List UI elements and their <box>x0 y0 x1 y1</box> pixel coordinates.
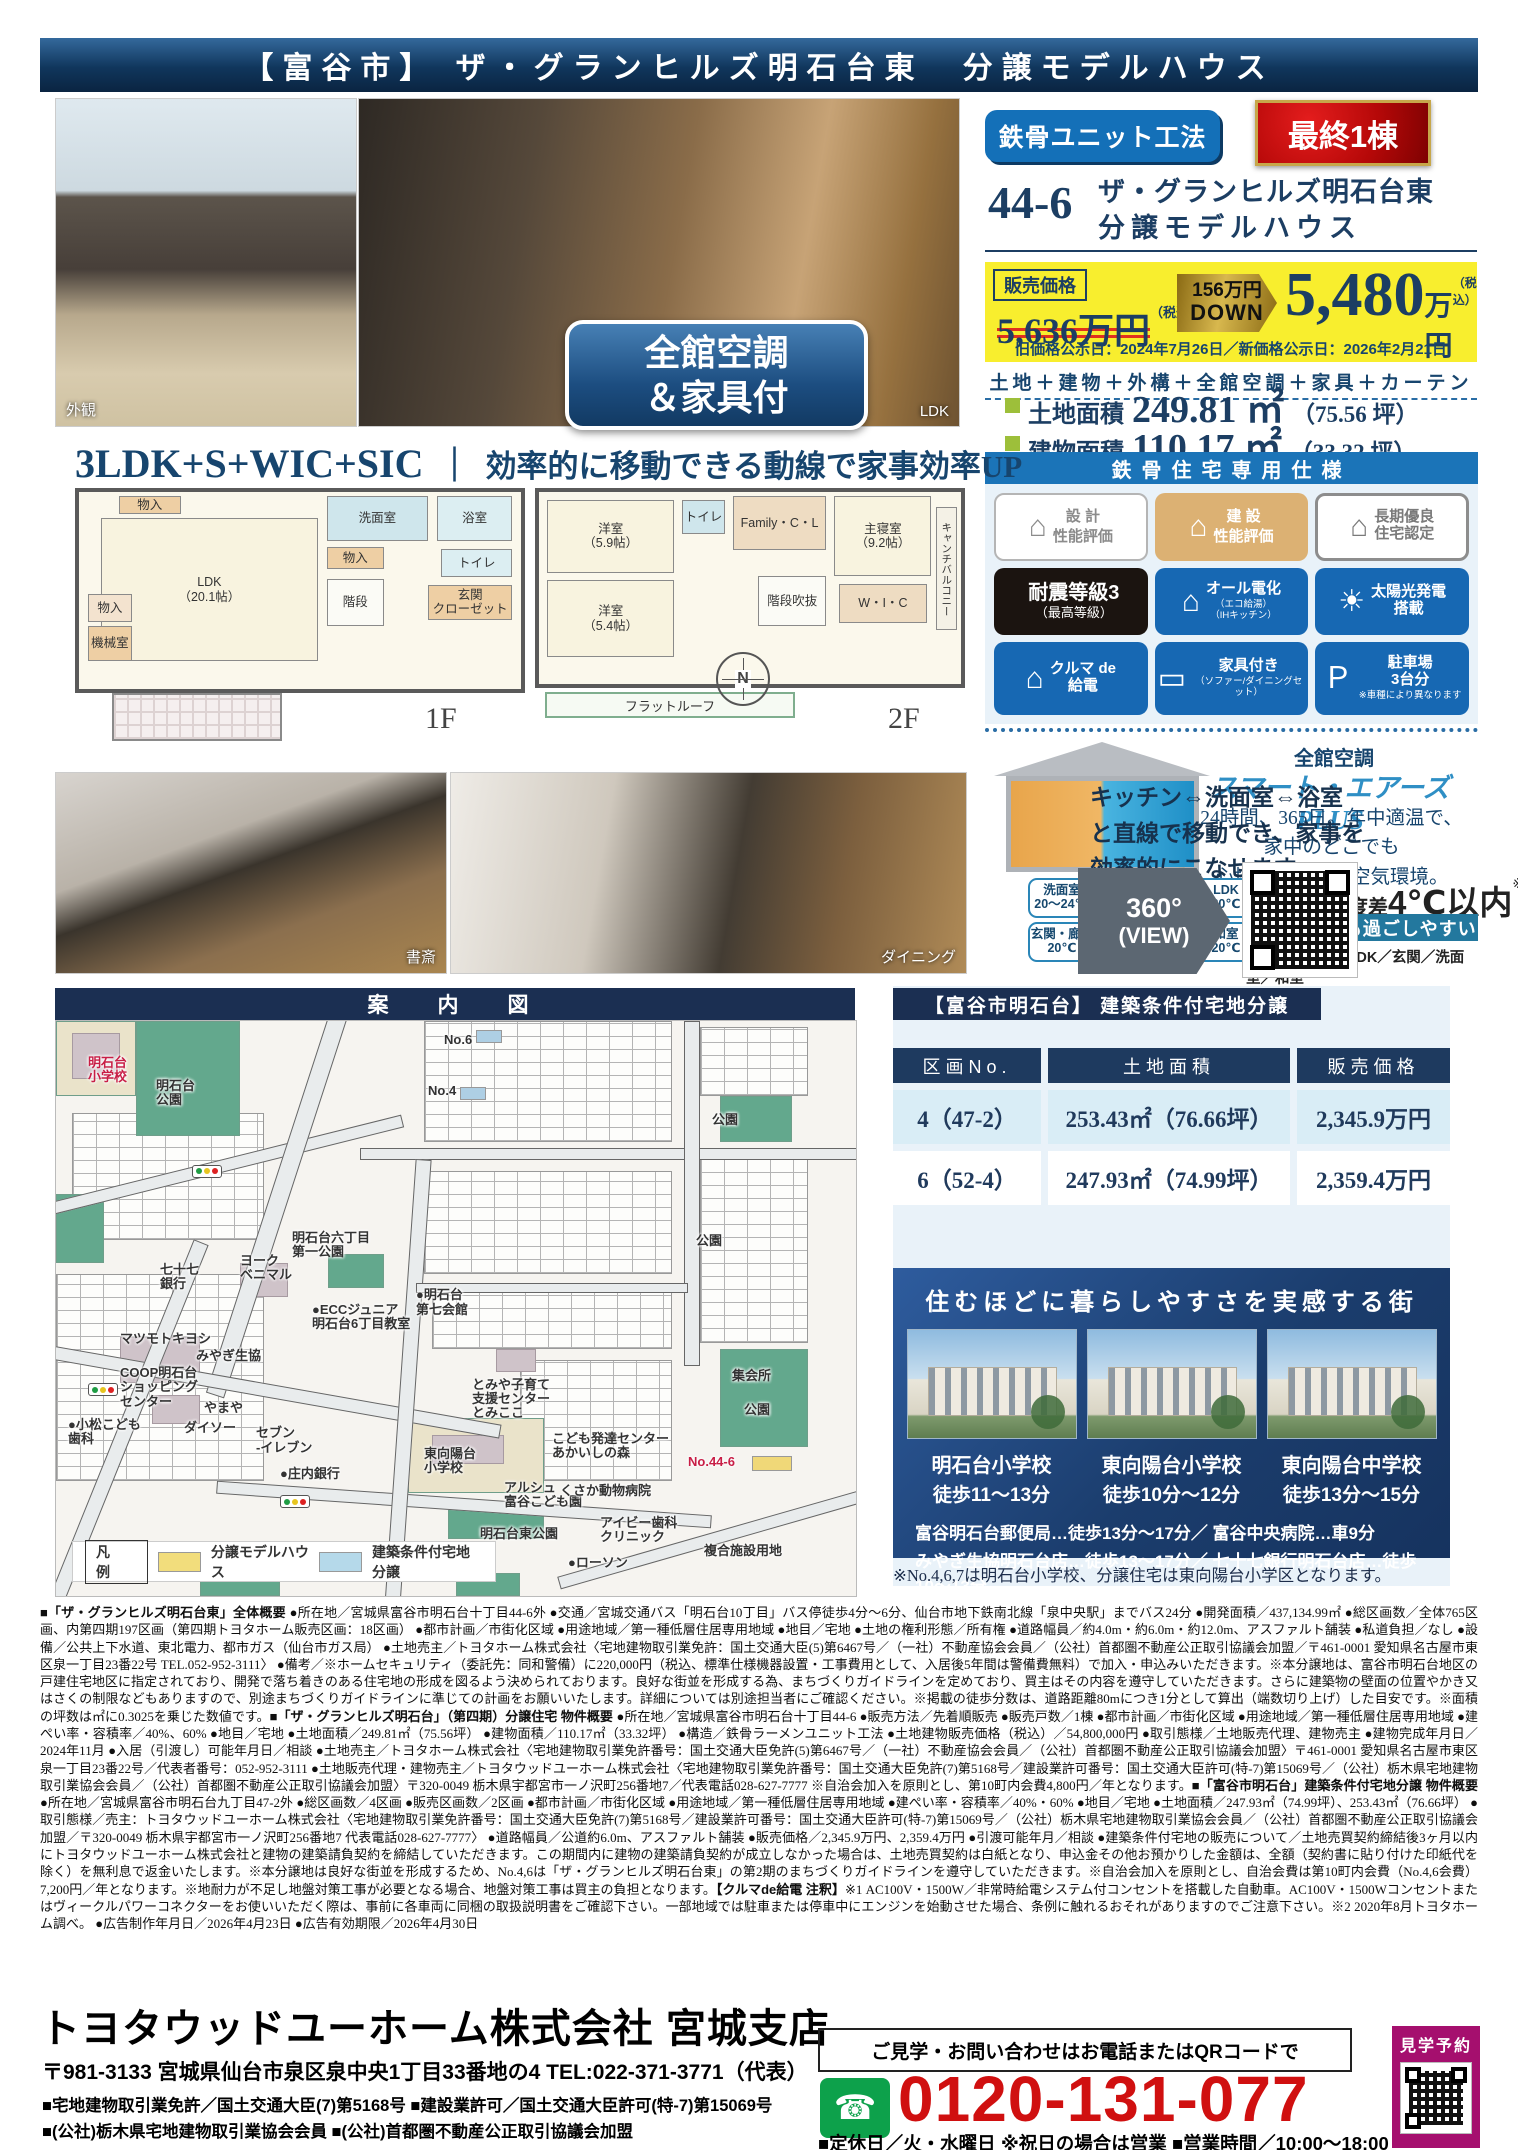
map-label: 公園 <box>696 1234 722 1248</box>
license-line1: ■宅地建物取引業免許／国土交通大臣(7)第5168号 ■建設業許可／国土交通大臣… <box>42 2092 772 2116</box>
house-roof-shape <box>994 742 1210 776</box>
lot-number: 44-6 <box>988 176 1072 229</box>
new-price-value: 5,480 <box>1285 260 1425 331</box>
map-label: やまや <box>204 1401 243 1415</box>
map-label: 集会所 <box>732 1369 771 1383</box>
map-legend: 凡 例 分譲モデルハウス 建築条件付宅地分譲 <box>72 1541 496 1581</box>
spec-badge: Ｐ 駐車場 3台分 ※車種により異なります <box>1315 642 1469 715</box>
school-item: 明石台小学校 徒歩11〜13分 <box>907 1329 1077 1507</box>
map-shape <box>496 1349 536 1372</box>
floorplan-1f: 物入LDK （20.1帖）洗面室浴室物入トイレ玄関 クローゼット物入機械室階段 <box>75 488 525 693</box>
map-label: セブン -イレブン <box>256 1426 312 1455</box>
legend-label-lots: 建築条件付宅地分譲 <box>372 1542 483 1582</box>
spec-badge-icon: ▭ <box>1158 664 1186 694</box>
ldk-photo-label: LDK <box>920 403 949 420</box>
spec-badge-icon: ⌂ <box>1029 512 1047 542</box>
traffic-light-icon <box>88 1383 118 1396</box>
spec-badge-text: 長期優良 住宅認定 <box>1374 509 1434 545</box>
reservation-label: 見学予約 <box>1400 2032 1472 2056</box>
map-shape <box>424 1171 672 1275</box>
phone-number: 0120-131-077 <box>898 2062 1309 2136</box>
spec-badge: 耐震等級3 （最高等級） <box>994 568 1148 635</box>
map-label: ●明石台 第七会館 <box>416 1288 468 1317</box>
map-label: 七十七 銀行 <box>160 1263 199 1292</box>
floorplan-room: 機械室 <box>88 626 132 661</box>
reservation-qr-code <box>1400 2062 1472 2134</box>
map-label: ダイソー <box>184 1421 236 1435</box>
new-price-tax: （税込） <box>1453 274 1477 308</box>
plan-type: 3LDK+S+WIC+SIC <box>75 440 423 487</box>
last-unit-badge: 最終1棟 <box>1255 100 1431 166</box>
floorplan-room: 浴室 <box>437 496 512 541</box>
map-label: 明石台東公園 <box>480 1527 558 1541</box>
floorplan-room: 洋室 （5.4帖） <box>547 580 674 657</box>
exterior-photo: 外観 <box>55 98 357 427</box>
school-name: 東向陽台小学校 <box>1087 1449 1257 1478</box>
aircon-badge-line2: ＆家具付 <box>644 375 788 420</box>
floorplan-room: LDK （20.1帖） <box>101 518 318 662</box>
map-shape <box>476 1030 502 1043</box>
plan-catchcopy: 効率的に移動できる動線で家事効率UP <box>485 441 1022 486</box>
header-bar: 【富谷市】 ザ・グランヒルズ明石台東 分譲モデルハウス <box>40 38 1478 92</box>
spec-badge-icon: ⌂ <box>1026 664 1044 694</box>
map-label: No.44-6 <box>688 1455 735 1469</box>
down-amount: 156万円 <box>1192 281 1262 301</box>
spec-badge-text: 建 設 性能評価 <box>1214 509 1274 545</box>
spec-badge-text: 太陽光発電 搭載 <box>1371 584 1446 620</box>
price-down-badge: 156万円 DOWN <box>1177 274 1277 332</box>
aircon-furniture-badge: 全館空調 ＆家具付 <box>565 320 868 430</box>
floor1-label: 1F <box>425 702 457 736</box>
spec-badge-text: クルマ de 給電 <box>1050 661 1116 697</box>
spec-badge: ⌂ 建 設 性能評価 <box>1155 493 1309 561</box>
map-label: No.6 <box>444 1033 472 1047</box>
map-shape <box>720 1349 808 1447</box>
school-item: 東向陽台中学校 徒歩13分〜15分 <box>1267 1329 1437 1507</box>
map-label: アイビー歯科 クリニック <box>600 1516 677 1545</box>
floorplan-room: 主寝室 （9.2帖） <box>834 496 931 577</box>
floorplan-room: キャンチバルコニー <box>936 507 957 630</box>
map-label: COOP明石台 ショッピング センター <box>120 1366 198 1409</box>
fine-print: ■「ザ・グランヒルズ明石台東」全体概要 ●所在地／宮城県富谷市明石台十丁目44-… <box>40 1604 1478 1986</box>
down-word: DOWN <box>1190 301 1264 324</box>
town-panel: 住むほどに暮らしやすさを実感する街 明石台小学校 徒歩11〜13分 東向陽台小学… <box>893 1268 1450 1558</box>
lots-table-body: 4（47-2） 253.43㎡（76.66坪） 2,345.9万円 6（52-4… <box>893 1090 1450 1205</box>
price-date-note: 旧価格公示日：2024年7月26日／新価格公示日：2026年2月21日 <box>985 338 1477 359</box>
flyer-page: 【富谷市】 ザ・グランヒルズ明石台東 分譲モデルハウス 外観 LDK 全館空調 … <box>0 0 1518 2150</box>
spec-badge-icon: ☀ <box>1338 587 1365 617</box>
spec-badge-text: 耐震等級3 （最高等級） <box>1028 582 1119 621</box>
school-walk-time: 徒歩13分〜15分 <box>1267 1480 1437 1507</box>
table-row: 4（47-2） 253.43㎡（76.66坪） 2,345.9万円 <box>893 1090 1450 1144</box>
facility-line1: 富谷明石台郵便局…徒歩13分〜17分／ 富谷中央病院…車9分 <box>915 1521 1450 1547</box>
legend-title: 凡 例 <box>85 1540 148 1584</box>
map-label: とみや子育て 支援センター とみここ <box>472 1378 550 1421</box>
traffic-light-icon <box>280 1495 310 1508</box>
license-line2: ■(公社)栃木県宅地建物取引業協会会員 ■(公社)首都圏不動産公正取引協議会加盟 <box>42 2118 633 2142</box>
col-lot-no: 区画No. <box>893 1048 1041 1083</box>
floorplan-room: 洋室 （5.9帖） <box>547 500 674 573</box>
legend-swatch-lots <box>319 1552 362 1572</box>
map-section-title: 案 内 図 <box>55 988 855 1020</box>
floorplan-room: 階段 <box>327 579 384 626</box>
school-district-note: ※No.4,6,7は明石台小学校、分譲住宅は東向陽台小学区となります。 <box>893 1562 1450 1586</box>
spec-badge-grid: ⌂ 設 計 性能評価 ⌂ 建 設 性能評価 ⌂ 長期優良 住宅認定 <box>985 484 1478 724</box>
traffic-light-icon <box>192 1165 222 1178</box>
aircon-badge-line1: 全館空調 <box>644 330 788 375</box>
company-name: トヨタウッドユーホーム株式会社 宮城支店 <box>40 1996 830 2054</box>
spec-badge: ⌂ 設 計 性能評価 <box>994 493 1148 561</box>
spec-badge-icon: ⌂ <box>1350 512 1368 542</box>
spec-badge-text: 家具付き （ソファー/ダイニングセット） <box>1192 658 1305 699</box>
business-hours: ■定休日／火・水曜日 ※祝日の場合は営業 ■営業時間／10:00〜18:00 <box>818 2130 1389 2150</box>
map-label: 公園 <box>744 1403 770 1417</box>
spec-badge: ⌂ オール電化 （エコ給湯） （IHキッチン） <box>1155 568 1309 635</box>
lots-table: 区画No. 土地面積 販売価格 4（47-2） 253.43㎡（76.66坪） … <box>893 1048 1450 1212</box>
floorplan-room: 物入 <box>327 547 384 569</box>
price-label: 販売価格 <box>993 269 1087 301</box>
dotted-divider <box>985 728 1478 732</box>
floorplan-room: トイレ <box>682 500 724 535</box>
school-walk-time: 徒歩10分〜12分 <box>1087 1480 1257 1507</box>
spec-badge-text: 駐車場 3台分 ※車種により異なります <box>1359 655 1462 702</box>
map-label: ヨーク ベニマル <box>240 1254 292 1283</box>
school-photo <box>1267 1329 1437 1439</box>
spec-section-title: 鉄骨住宅専用仕様 <box>985 452 1478 484</box>
spec-badge: ☀ 太陽光発電 搭載 <box>1315 568 1469 635</box>
green-square-icon <box>1005 398 1020 413</box>
lots-table-header: 区画No. 土地面積 販売価格 <box>893 1048 1450 1083</box>
map-label: ●ECCジュニア 明石台6丁目教室 <box>312 1303 410 1332</box>
lots-section-title: 【富谷市明石台】 建築条件付宅地分譲 <box>893 988 1321 1020</box>
map-label: 公園 <box>712 1113 738 1127</box>
reservation-box: 見学予約 <box>1392 2026 1480 2148</box>
dining-photo: ダイニング <box>450 772 967 974</box>
divider <box>985 250 1477 252</box>
table-row: 6（52-4） 247.93㎡（74.99坪） 2,359.4万円 <box>893 1151 1450 1205</box>
school-walk-time: 徒歩11〜13分 <box>907 1480 1077 1507</box>
exterior-photo-label: 外観 <box>66 399 96 420</box>
school-item: 東向陽台小学校 徒歩10分〜12分 <box>1087 1329 1257 1507</box>
school-photo <box>1087 1329 1257 1439</box>
floorplan-room: 洗面室 <box>327 496 429 541</box>
floor2-label: 2F <box>888 702 920 736</box>
property-name-line2: 分譲モデルハウス <box>1098 206 1362 245</box>
dining-photo-label: ダイニング <box>881 946 956 967</box>
spec-badge-text: 設 計 性能評価 <box>1053 509 1113 545</box>
porch-tiles <box>112 693 282 741</box>
map-label: 明石台 小学校 <box>88 1056 127 1085</box>
map-label: くさか動物病院 <box>560 1484 651 1498</box>
freedial-icon: ☎ <box>820 2078 890 2138</box>
col-price: 販売価格 <box>1297 1048 1450 1083</box>
map-label: 複合施設用地 <box>704 1544 782 1558</box>
study-photo: 書斎 <box>55 772 447 974</box>
map-shape <box>360 1148 857 1161</box>
map-label: ●ローソン <box>568 1556 628 1570</box>
spec-badge: ⌂ クルマ de 給電 <box>994 642 1148 715</box>
company-address: 〒981-3133 宮城県仙台市泉区泉中央1丁目33番地の4 TEL:022-3… <box>42 2056 808 2086</box>
plan-heading: 3LDK+S+WIC+SIC ｜ 効率的に移動できる動線で家事効率UP <box>75 438 1022 487</box>
legend-swatch-model-house <box>158 1552 201 1572</box>
property-name-line1: ザ・グランヒルズ明石台東 <box>1098 170 1434 209</box>
town-title: 住むほどに暮らしやすさを実感する街 <box>893 1282 1450 1317</box>
fine-print-segment: ■「富谷市明石台」建築条件付宅地分譲 物件概要 <box>1192 1778 1478 1793</box>
virtual-tour-qr-code <box>1242 862 1358 978</box>
map-shape <box>684 1021 700 1366</box>
map-label: みやぎ生協 <box>196 1349 261 1363</box>
floorplan-room: W・I・C <box>839 584 928 622</box>
spec-badge-icon: ⌂ <box>1182 587 1200 617</box>
map-shape <box>384 1159 431 1597</box>
map-label: こども発達センター あかいしの森 <box>552 1432 669 1461</box>
legend-label-model-house: 分譲モデルハウス <box>211 1542 310 1582</box>
map-shape <box>700 1159 808 1343</box>
map-label: 東向陽台 小学校 <box>424 1447 476 1476</box>
fine-print-segment: ■「ザ・グランヒルズ明石台」（第四期）分譲住宅 物件概要 <box>270 1709 617 1724</box>
floorplan-room: 物入 <box>119 496 181 514</box>
floorplan-room: Family・C・L <box>733 496 826 550</box>
col-land-area: 土地面積 <box>1048 1048 1290 1083</box>
page-title: 【富谷市】 ザ・グランヒルズ明石台東 分譲モデルハウス <box>243 43 1274 87</box>
school-list: 明石台小学校 徒歩11〜13分 東向陽台小学校 徒歩10分〜12分 東向陽台中学… <box>893 1329 1450 1507</box>
construction-method-badge: 鉄骨ユニット工法 <box>985 110 1220 162</box>
fine-print-segment: ■「ザ・グランヒルズ明石台東」全体概要 <box>40 1605 290 1620</box>
map-shape <box>460 1087 486 1100</box>
floorplan-room: 物入 <box>88 594 132 622</box>
compass-icon: N <box>716 652 770 706</box>
map-shape <box>752 1456 792 1471</box>
price-box: 販売価格 5,636万円（税込） 156万円 DOWN 5,480 万円 （税込… <box>985 262 1477 362</box>
school-name: 東向陽台中学校 <box>1267 1449 1437 1478</box>
study-photo-label: 書斎 <box>406 946 436 967</box>
spec-badge: ⌂ 長期優良 住宅認定 <box>1315 493 1469 561</box>
map-label: 明石台六丁目 第一公園 <box>292 1231 370 1260</box>
spec-badge: ▭ 家具付き （ソファー/ダイニングセット） <box>1155 642 1309 715</box>
map-shape <box>700 1027 808 1096</box>
spec-badge-icon: Ｐ <box>1323 664 1353 694</box>
spec-badge-icon: ⌂ <box>1189 512 1207 542</box>
map-label: ●小松こども 歯科 <box>68 1418 141 1447</box>
floorplan-room: 階段吹抜 <box>758 576 826 626</box>
spec-badge-text: オール電化 （エコ給湯） （IHキッチン） <box>1206 581 1281 622</box>
school-name: 明石台小学校 <box>907 1449 1077 1478</box>
area-map: 明石台 小学校明石台 公園No.6No.4公園公園七十七 銀行ヨーク ベニマル明… <box>55 1020 857 1597</box>
school-photo <box>907 1329 1077 1439</box>
map-label: マツモトキヨシ <box>120 1332 211 1346</box>
fine-print-segment: 【クルマde給電 注釈】 <box>716 1882 845 1897</box>
floorplan-room: トイレ <box>441 549 512 577</box>
fine-print-segment: ●所在地／宮城県富谷市明石台十丁目44-6外 ●交通／宮城交通バス「明石台10丁… <box>40 1605 1478 1724</box>
map-label: 明石台 公園 <box>156 1079 195 1108</box>
map-label: ●庄内銀行 <box>280 1467 340 1481</box>
floorplan-room: 玄関 クローゼット <box>428 585 512 620</box>
map-label: No.4 <box>428 1084 456 1098</box>
